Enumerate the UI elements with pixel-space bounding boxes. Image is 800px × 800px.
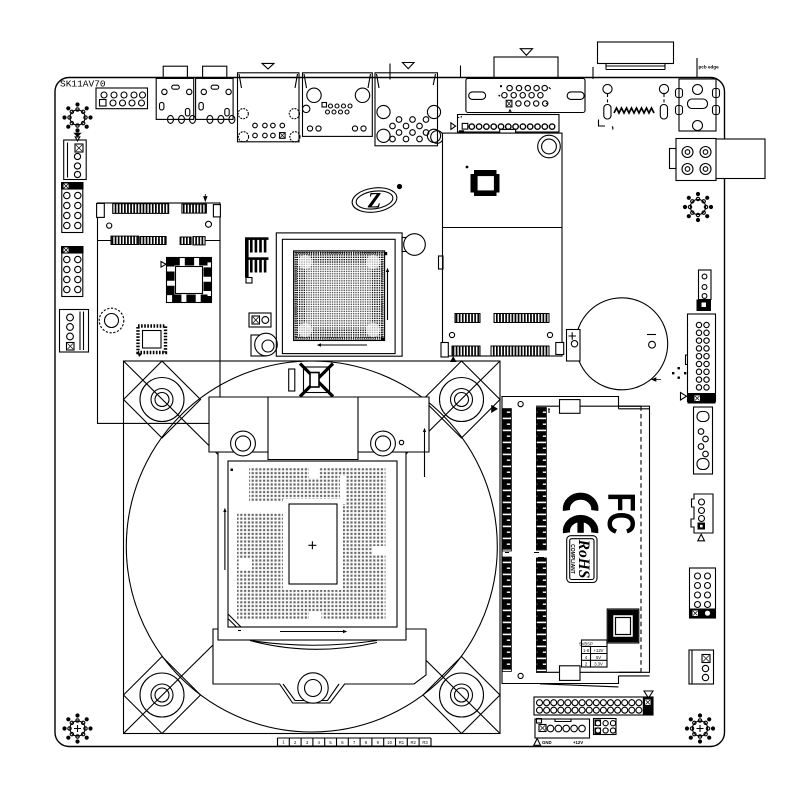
svg-text:5V: 5V <box>596 655 601 660</box>
svg-text:R2: R2 <box>411 740 417 745</box>
svg-text:5VBSP: 5VBSP <box>579 641 593 646</box>
svg-text:R1: R1 <box>399 740 405 745</box>
svg-text:10: 10 <box>387 740 392 745</box>
svg-text:FC: FC <box>599 493 642 535</box>
svg-text:1-8: 1-8 <box>583 648 590 653</box>
svg-text:RoHS: RoHS <box>575 539 592 579</box>
svg-text:R3: R3 <box>422 740 428 745</box>
svg-text:pcb edge: pcb edge <box>699 65 720 70</box>
svg-text:GND: GND <box>542 740 552 745</box>
svg-text:COMPLIANT: COMPLIANT <box>569 544 575 574</box>
svg-text:3.3V: 3.3V <box>594 662 603 667</box>
svg-text:+12V: +12V <box>573 740 583 745</box>
svg-text:+12V: +12V <box>594 648 604 653</box>
svg-text:Z: Z <box>367 188 381 213</box>
